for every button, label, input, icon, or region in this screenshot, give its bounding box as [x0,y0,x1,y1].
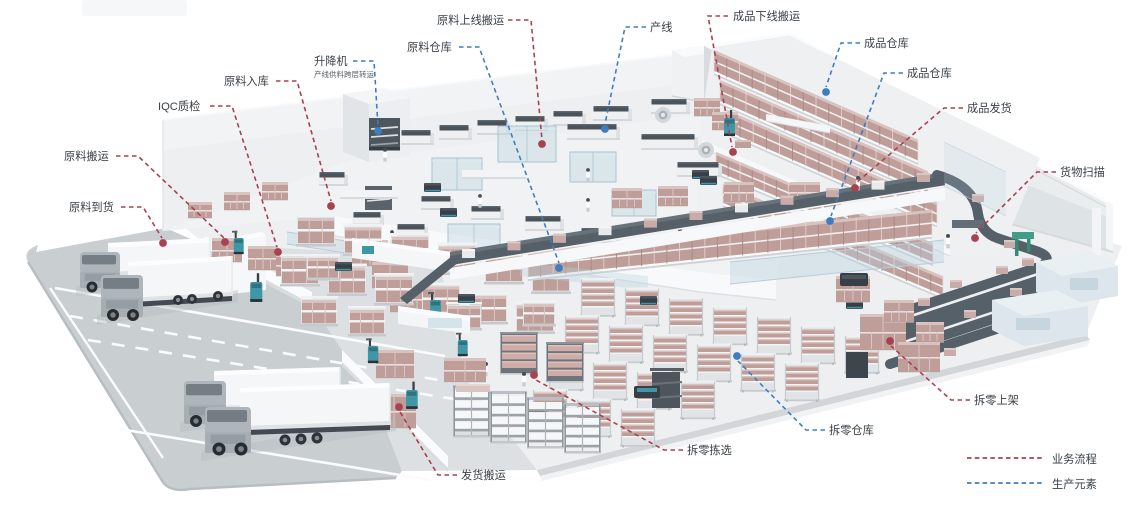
svg-text:拆零上架: 拆零上架 [974,393,1019,407]
svg-text:原料入库: 原料入库 [224,74,269,88]
svg-text:成品下线搬运: 成品下线搬运 [733,9,800,23]
svg-text:原料搬运: 原料搬运 [64,149,109,163]
svg-text:产线供料跨层转运: 产线供料跨层转运 [314,69,374,79]
svg-text:原料仓库: 原料仓库 [407,40,452,54]
svg-text:发货搬运: 发货搬运 [461,468,506,482]
svg-text:拆零仓库: 拆零仓库 [829,423,874,437]
svg-text:生产元素: 生产元素 [1052,477,1097,491]
svg-text:原料上线搬运: 原料上线搬运 [437,13,504,27]
svg-text:产线: 产线 [650,20,672,34]
svg-text:货物扫描: 货物扫描 [1060,165,1105,179]
svg-text:升降机: 升降机 [314,54,348,68]
svg-text:原料到货: 原料到货 [69,200,114,214]
svg-text:成品仓库: 成品仓库 [864,36,909,50]
svg-text:拆零拣选: 拆零拣选 [687,443,732,457]
svg-text:成品发货: 成品发货 [967,101,1012,115]
svg-text:成品仓库: 成品仓库 [907,66,952,80]
svg-text:业务流程: 业务流程 [1052,452,1097,466]
svg-text:IQC质检: IQC质检 [158,99,200,113]
